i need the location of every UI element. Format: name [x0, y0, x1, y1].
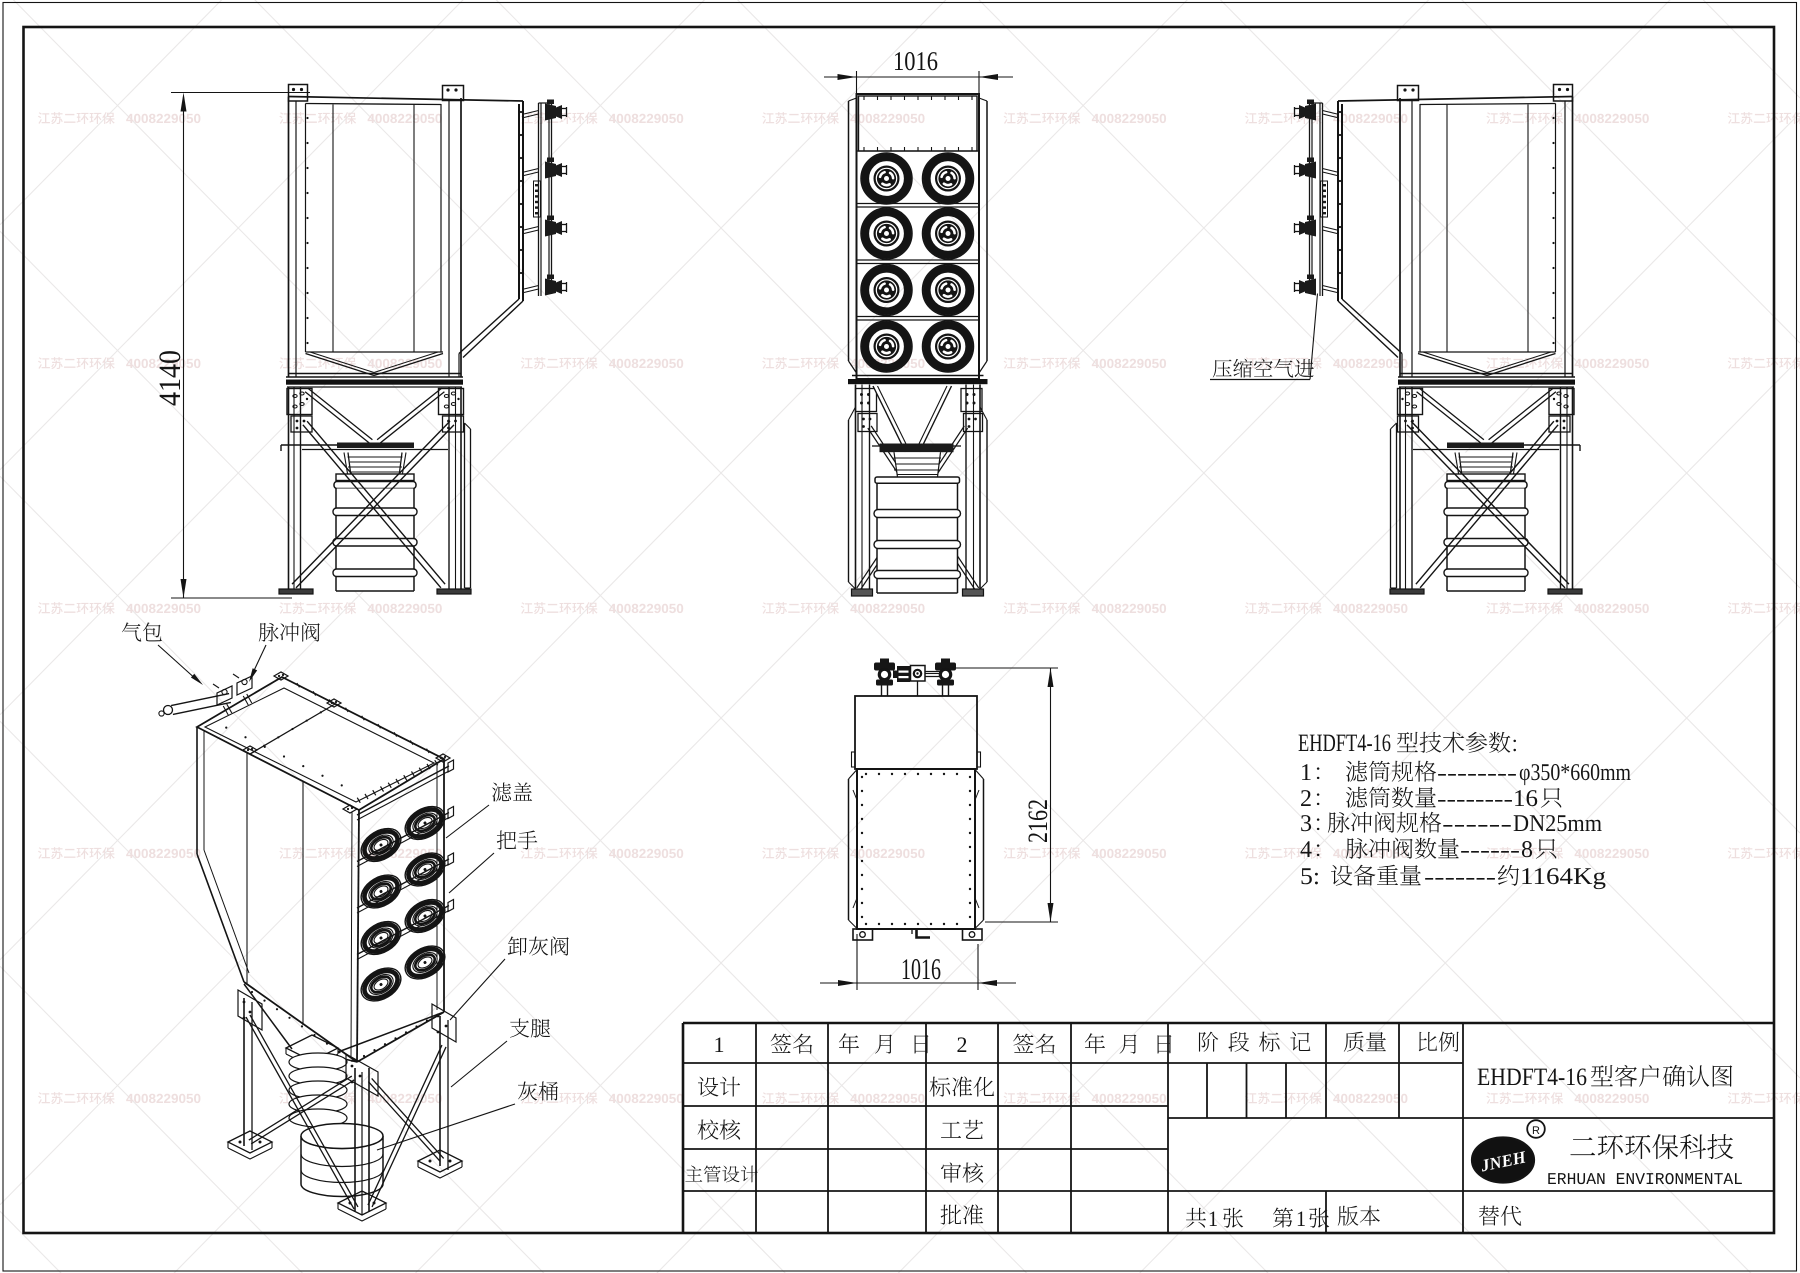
- svg-text:DN25mm: DN25mm: [1513, 811, 1602, 837]
- svg-text:--------: --------: [1437, 786, 1513, 811]
- svg-text:4008229050: 4008229050: [609, 846, 684, 861]
- svg-text:ERHUAN ENVIRONMENTAL: ERHUAN ENVIRONMENTAL: [1547, 1170, 1743, 1189]
- svg-text:4008229050: 4008229050: [367, 356, 442, 371]
- svg-text:4008229050: 4008229050: [126, 111, 201, 126]
- svg-text:------: ------: [1442, 811, 1512, 836]
- svg-text:4008229050: 4008229050: [1092, 1091, 1167, 1106]
- svg-text:4008229050: 4008229050: [609, 356, 684, 371]
- svg-text:4008229050: 4008229050: [1333, 356, 1408, 371]
- svg-text:4008229050: 4008229050: [1333, 111, 1408, 126]
- svg-text:4008229050: 4008229050: [126, 846, 201, 861]
- svg-text:4008229050: 4008229050: [609, 601, 684, 616]
- svg-text:4008229050: 4008229050: [609, 1091, 684, 1106]
- svg-text:--------: --------: [1437, 760, 1517, 785]
- svg-text:4008229050: 4008229050: [1574, 111, 1649, 126]
- svg-text:-------: -------: [1424, 864, 1496, 889]
- svg-text:4: 4: [1300, 837, 1312, 863]
- svg-text:EHDFT4-16: EHDFT4-16: [1298, 730, 1391, 757]
- svg-text:3: 3: [1300, 811, 1312, 837]
- svg-text:1: 1: [1208, 1206, 1218, 1231]
- svg-text:------: ------: [1460, 837, 1520, 862]
- svg-text:4008229050: 4008229050: [1574, 846, 1649, 861]
- svg-text:4008229050: 4008229050: [1092, 846, 1167, 861]
- svg-text:4008229050: 4008229050: [367, 111, 442, 126]
- svg-text:4008229050: 4008229050: [1092, 356, 1167, 371]
- svg-text:5:: 5:: [1300, 864, 1320, 890]
- svg-text:8: 8: [1521, 837, 1533, 863]
- svg-text:4008229050: 4008229050: [126, 1091, 201, 1106]
- svg-text:2: 2: [957, 1032, 968, 1057]
- svg-text:16: 16: [1513, 786, 1538, 812]
- svg-text:2: 2: [1300, 786, 1312, 812]
- svg-text:4008229050: 4008229050: [850, 1091, 925, 1106]
- svg-text:4008229050: 4008229050: [1574, 601, 1649, 616]
- svg-text:4008229050: 4008229050: [850, 601, 925, 616]
- svg-text:4008229050: 4008229050: [1333, 601, 1408, 616]
- svg-text:1: 1: [714, 1032, 725, 1057]
- svg-text:4008229050: 4008229050: [609, 111, 684, 126]
- svg-text:1: 1: [1296, 1206, 1306, 1231]
- svg-text:1: 1: [1300, 760, 1312, 786]
- svg-text:φ350*660mm: φ350*660mm: [1519, 760, 1631, 786]
- svg-text:4008229050: 4008229050: [1574, 1091, 1649, 1106]
- svg-text:4008229050: 4008229050: [1333, 1091, 1408, 1106]
- svg-text:4008229050: 4008229050: [1574, 356, 1649, 371]
- svg-text:EHDFT4-16: EHDFT4-16: [1477, 1064, 1587, 1091]
- svg-text:R: R: [1532, 1125, 1540, 1137]
- svg-text:4008229050: 4008229050: [850, 111, 925, 126]
- svg-text:4008229050: 4008229050: [850, 846, 925, 861]
- svg-text:1164Kg: 1164Kg: [1520, 864, 1606, 890]
- svg-text:4008229050: 4008229050: [367, 601, 442, 616]
- svg-text:4008229050: 4008229050: [1092, 601, 1167, 616]
- svg-text:4008229050: 4008229050: [126, 601, 201, 616]
- svg-text:4008229050: 4008229050: [1092, 111, 1167, 126]
